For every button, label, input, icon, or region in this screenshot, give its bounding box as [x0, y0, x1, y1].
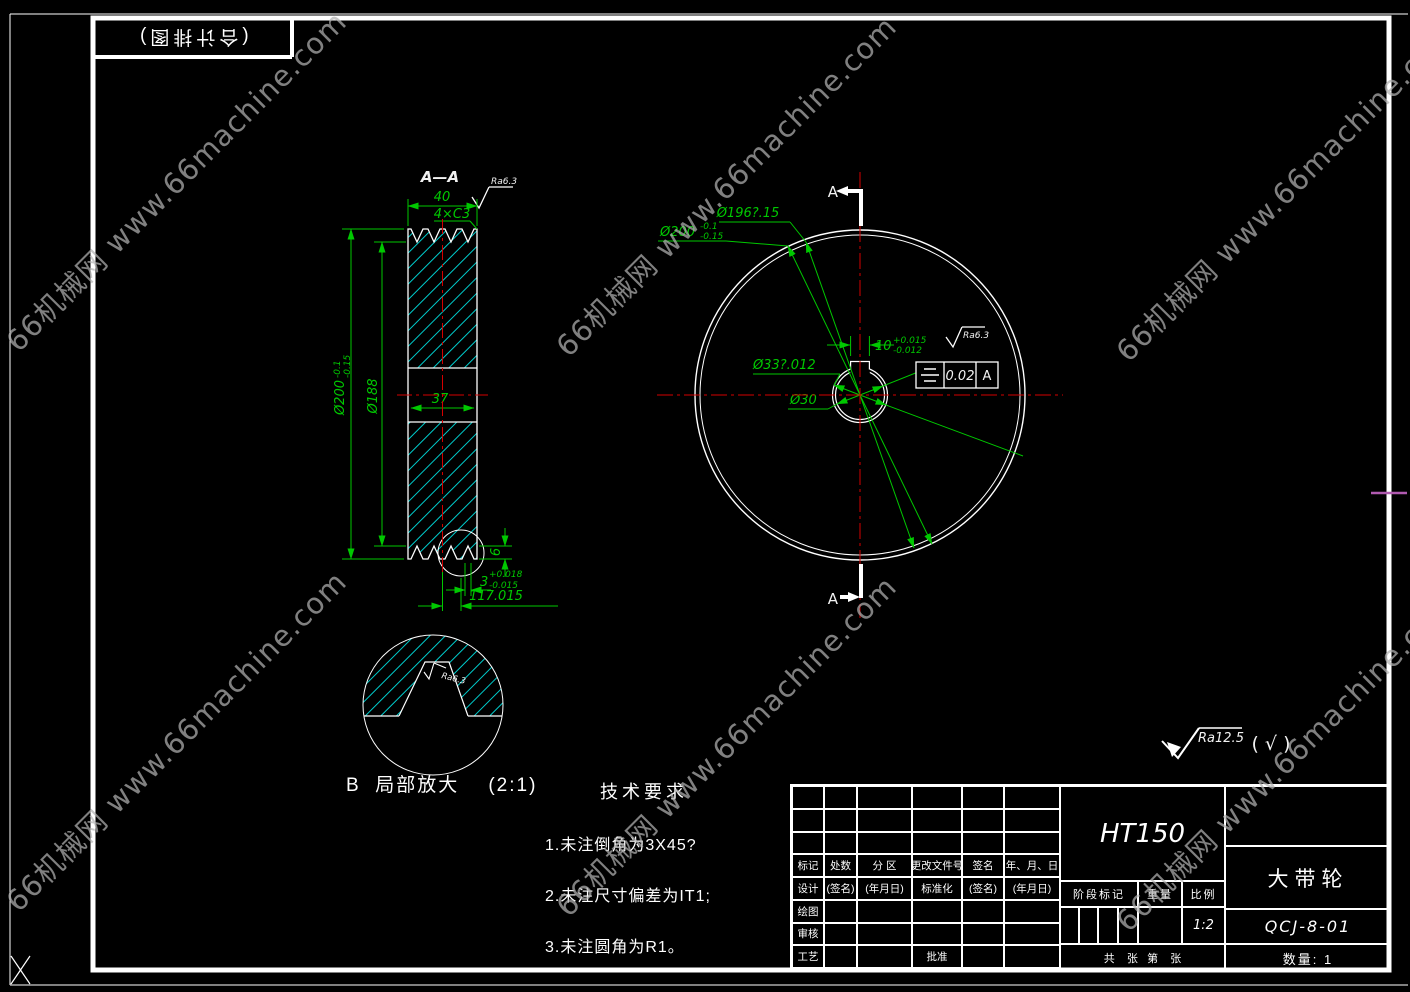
- ra-keyway: Ra6.3: [963, 331, 989, 341]
- material-cell: HT150: [1060, 786, 1225, 881]
- frame-corner-label: (合计排图): [95, 20, 289, 56]
- title-block-cell: 批准: [912, 945, 962, 968]
- weight-cell: [1138, 907, 1182, 944]
- scale-value: 1:2: [1182, 907, 1225, 944]
- title-block-cell: [857, 923, 912, 946]
- technical-requirements: 技术要求 1.未注倒角为3X45? 2.未注尺寸偏差为IT1; 3.未注圆角为R…: [545, 778, 775, 957]
- ra-value: Ra6.3: [491, 177, 517, 187]
- title-block-cell: [962, 832, 1004, 855]
- sheet-count-row: 共 张 第 张: [1060, 944, 1225, 972]
- cad-canvas: A—A Ra6.3 40 4×C3 Ø200 -0.1 -0.15 Ø1: [0, 0, 1410, 992]
- title-block-cell: [912, 923, 962, 946]
- detail-view-caption: B 局部放大 (2:1): [346, 770, 537, 797]
- title-block-cell: [792, 832, 824, 855]
- dim-groove-width: 3: [480, 575, 488, 590]
- title-block-cell: [962, 945, 1004, 968]
- title-block-cell: [962, 923, 1004, 946]
- title-block-cell: [857, 900, 912, 923]
- dim-hub: 37: [432, 392, 449, 407]
- title-block-cell: (签名): [824, 877, 857, 900]
- surface-note-others: ( √ ): [1251, 733, 1290, 755]
- drawing-number: QCJ-8-01: [1225, 909, 1391, 944]
- tolerance-value: 0.02: [946, 369, 975, 384]
- part-name: 大带轮: [1225, 846, 1391, 909]
- section-title: A—A: [420, 168, 459, 186]
- title-block-cell: [857, 786, 912, 809]
- svg-text:+0.018: +0.018: [489, 570, 523, 580]
- title-block-cell: [824, 923, 857, 946]
- title-block-cell: [912, 832, 962, 855]
- svg-text:+0.015: +0.015: [893, 336, 927, 346]
- weight-label: 重量: [1138, 881, 1182, 907]
- quantity-cell: 数量: 1: [1225, 944, 1391, 972]
- svg-text:-0.15: -0.15: [343, 354, 353, 378]
- title-block-cell: 标记: [792, 854, 824, 877]
- stage-cell: [1098, 907, 1118, 944]
- title-block-cell: [824, 900, 857, 923]
- title-block-cell: [824, 809, 857, 832]
- title-block-cell: [962, 809, 1004, 832]
- stage-mark-label: 阶段标记: [1060, 881, 1138, 907]
- title-block-cell: 工艺: [792, 945, 824, 968]
- stage-cell: [1118, 907, 1138, 944]
- tech-req-title: 技术要求: [545, 778, 775, 804]
- title-block-cell: [962, 786, 1004, 809]
- title-block-cell: [857, 832, 912, 855]
- dim-bore: Ø33?.012: [752, 358, 816, 373]
- tolerance-frame: 0.02 A: [916, 362, 998, 388]
- title-block-cell: [1004, 832, 1060, 855]
- title-block-cell: (年月日): [1004, 877, 1060, 900]
- tech-req-item: 1.未注倒角为3X45?: [545, 831, 775, 855]
- svg-text:-0.1: -0.1: [700, 222, 718, 232]
- crosshair-cursor[interactable]: [11, 956, 30, 984]
- dim-outer-dia: Ø200: [333, 380, 348, 416]
- stage-cell: [1060, 907, 1079, 944]
- section-label: A: [828, 590, 839, 608]
- dim-pitch-dia: Ø196?.15: [716, 206, 780, 221]
- title-block-cell: [857, 809, 912, 832]
- surface-finish-icon: Ra6.3: [946, 327, 989, 347]
- title-block-cell: [912, 900, 962, 923]
- title-block-cell: (年月日): [857, 877, 912, 900]
- title-block-cell: 分 区: [857, 854, 912, 877]
- title-block-cell: [912, 786, 962, 809]
- title-block-cell: [792, 786, 824, 809]
- svg-text:-0.012: -0.012: [893, 346, 922, 356]
- title-block-cell: 处数: [824, 854, 857, 877]
- section-label: A: [828, 183, 839, 201]
- dim-groove-depth: 6: [489, 548, 504, 556]
- ra-global: Ra12.5: [1198, 731, 1244, 746]
- title-block-cell: 标准化: [912, 877, 962, 900]
- title-block-cell: (签名): [962, 877, 1004, 900]
- title-block-cell: [857, 945, 912, 968]
- title-block: 标记处数分 区更改文件号签名年、月、日设计(签名)(年月日)标准化(签名)(年月…: [790, 784, 1389, 970]
- title-block-cell: [1004, 786, 1060, 809]
- title-block-cell: [1004, 923, 1060, 946]
- surface-finish-icon: Ra6.3: [472, 177, 517, 208]
- dim-outer-dia-front: Ø200: [659, 225, 695, 240]
- dim-keyway: 10: [875, 339, 892, 354]
- tech-req-item: 3.未注圆角为R1。: [545, 933, 775, 957]
- dim-groove-pitch: 117.015: [469, 589, 523, 604]
- title-block-cell: 设计: [792, 877, 824, 900]
- tech-req-item: 2.未注尺寸偏差为IT1;: [545, 882, 775, 906]
- corner-label-text: (合计排图): [136, 25, 249, 52]
- tolerance-datum: A: [983, 369, 992, 384]
- title-block-cell: 签名: [962, 854, 1004, 877]
- company-cell: [1225, 786, 1391, 846]
- title-block-cell: [912, 809, 962, 832]
- dim-root-dia: Ø188: [366, 378, 381, 414]
- title-block-cell: 年、月、日: [1004, 854, 1060, 877]
- surface-note: Ra12.5 ( √ ): [1162, 728, 1291, 758]
- stage-cell: [1079, 907, 1098, 944]
- title-block-cell: [824, 786, 857, 809]
- dim-chamfer: 4×C3: [434, 207, 471, 222]
- title-block-cell: 更改文件号: [912, 854, 962, 877]
- dim-width: 40: [434, 190, 451, 205]
- title-block-cell: [792, 809, 824, 832]
- svg-text:-0.1: -0.1: [333, 360, 343, 378]
- title-block-cell: [962, 900, 1004, 923]
- title-block-cell: [1004, 900, 1060, 923]
- title-block-cell: [824, 832, 857, 855]
- title-block-cell: 审核: [792, 923, 824, 946]
- section-view: A—A Ra6.3: [408, 168, 517, 576]
- title-block-cell: 绘图: [792, 900, 824, 923]
- title-block-cell: [824, 945, 857, 968]
- title-block-cell: [1004, 945, 1060, 968]
- detail-view: Ra6.3: [362, 634, 504, 775]
- title-block-cell: [1004, 809, 1060, 832]
- scale-label: 比例: [1182, 881, 1225, 907]
